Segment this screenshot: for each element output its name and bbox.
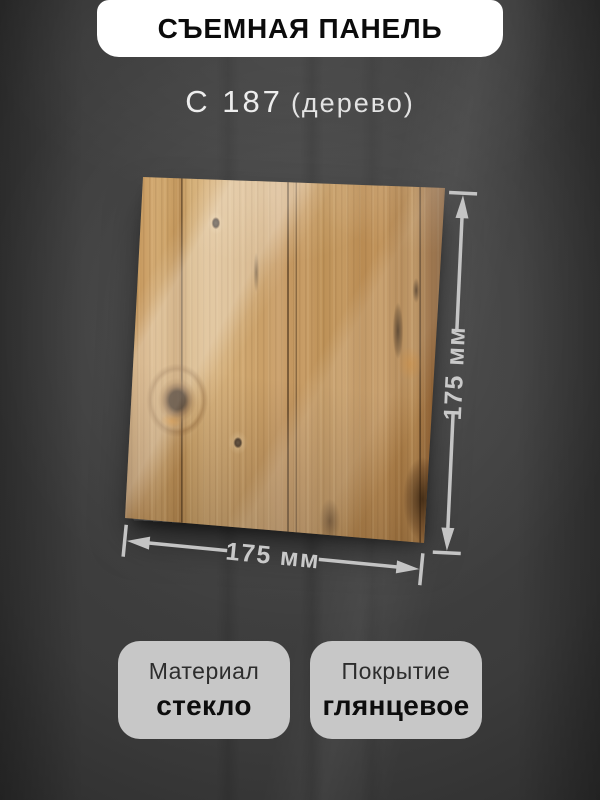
spec-value: глянцевое <box>322 690 469 722</box>
spec-label: Материал <box>149 658 260 685</box>
spec-card-coating: Покрытие глянцевое <box>310 641 482 739</box>
dimension-cap-bottom <box>433 552 461 553</box>
dimension-shaft <box>148 543 228 551</box>
height-dimension: 175 мм <box>433 193 477 554</box>
dimension-cap-top <box>449 193 477 194</box>
arrowhead-right-icon <box>396 560 420 575</box>
spec-cards: Материал стекло Покрытие глянцевое <box>118 641 482 739</box>
arrowhead-down-icon <box>440 528 454 552</box>
arrowhead-up-icon <box>455 195 469 219</box>
dimension-shaft <box>448 414 453 530</box>
dimension-shaft <box>457 216 462 332</box>
product-poster: СЪЕМНАЯ ПАНЕЛЬ C 187(дерево) 175 мм 175 … <box>0 0 600 800</box>
spec-value: стекло <box>156 690 252 722</box>
dimension-cap-left <box>123 525 126 557</box>
dimension-shaft <box>319 559 399 567</box>
dimension-cap-right <box>420 553 423 585</box>
arrowhead-left-icon <box>126 534 150 549</box>
spec-label: Покрытие <box>342 658 451 685</box>
spec-card-material: Материал стекло <box>118 641 290 739</box>
width-dimension: 175 мм <box>123 525 423 585</box>
width-dimension-label: 175 мм <box>224 538 321 575</box>
height-dimension-label: 175 мм <box>439 325 471 421</box>
